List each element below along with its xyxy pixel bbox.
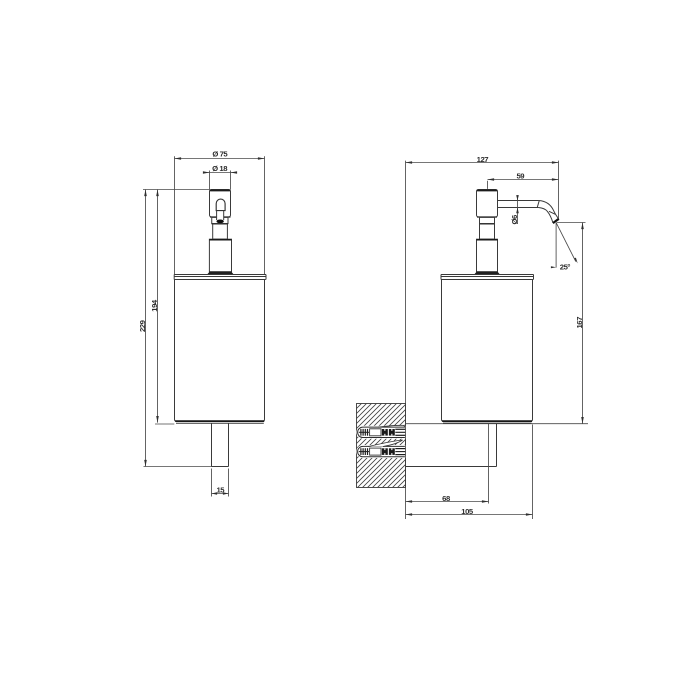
svg-text:167: 167 xyxy=(575,317,584,329)
svg-text:15: 15 xyxy=(216,486,225,495)
svg-text:59: 59 xyxy=(516,171,524,180)
svg-text:Ø 18: Ø 18 xyxy=(212,164,228,173)
svg-text:105: 105 xyxy=(461,507,474,516)
svg-text:Ø6: Ø6 xyxy=(510,215,519,225)
svg-text:25°: 25° xyxy=(560,262,571,271)
svg-text:194: 194 xyxy=(150,299,159,312)
svg-text:Ø 75: Ø 75 xyxy=(212,150,228,159)
svg-text:127: 127 xyxy=(477,155,489,164)
svg-text:68: 68 xyxy=(442,494,451,503)
svg-text:229: 229 xyxy=(138,320,147,332)
